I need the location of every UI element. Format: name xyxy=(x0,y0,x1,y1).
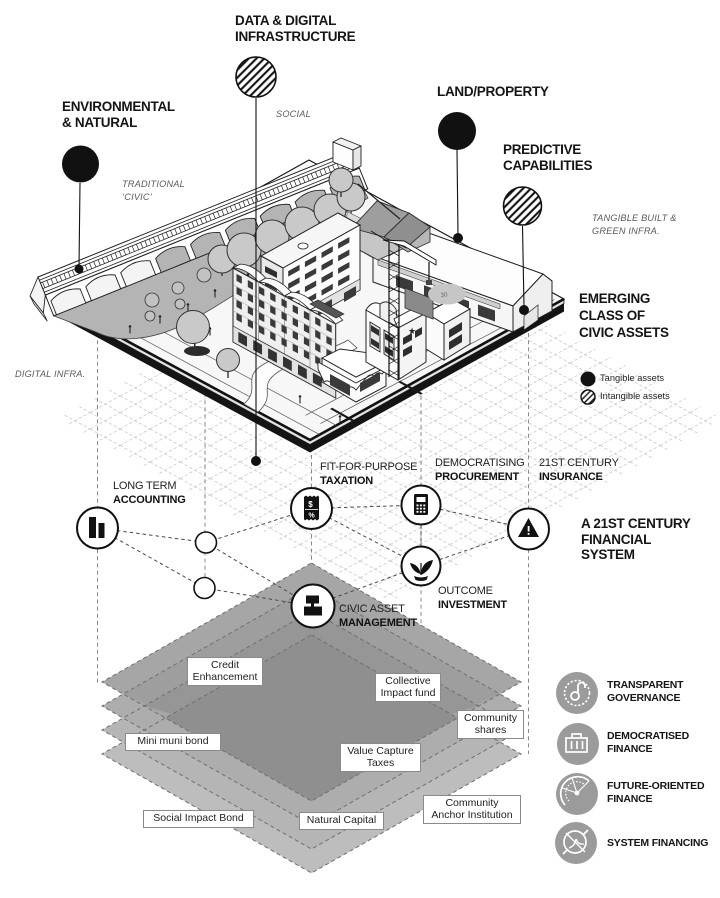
svg-text:%: % xyxy=(309,513,316,520)
svg-text:★: ★ xyxy=(408,326,416,336)
svg-text:$: $ xyxy=(308,500,313,509)
